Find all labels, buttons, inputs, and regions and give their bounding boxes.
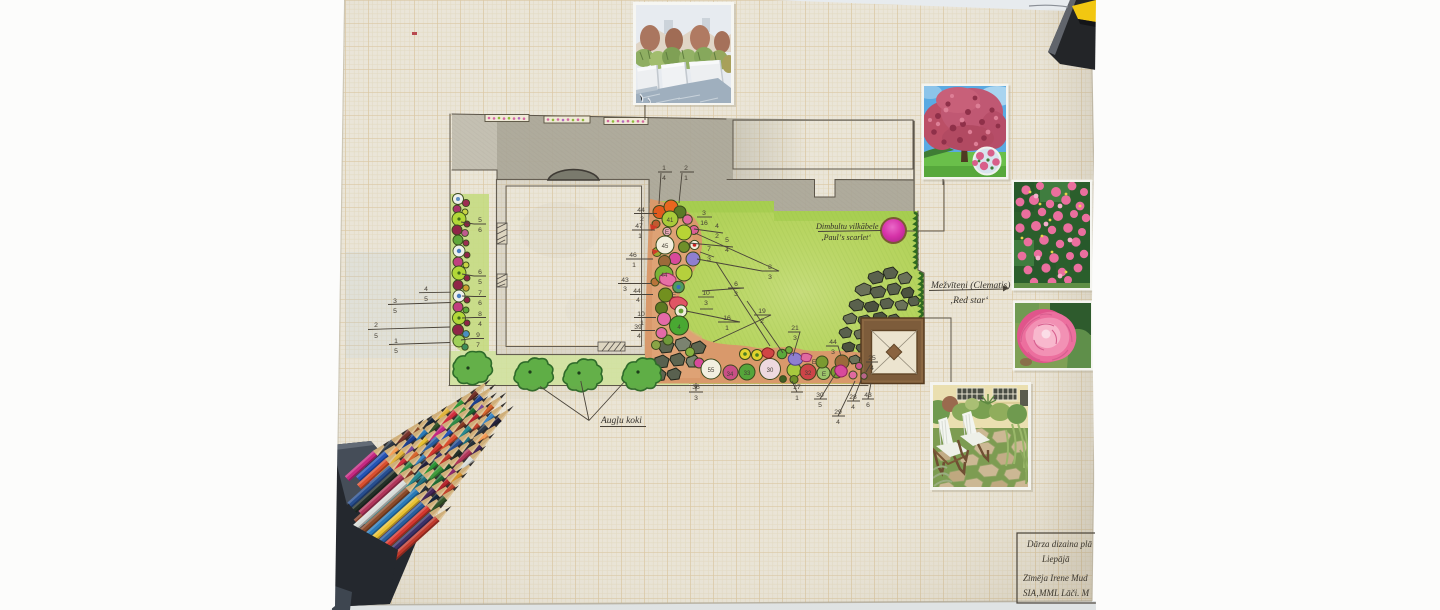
svg-text:5: 5	[374, 333, 378, 340]
svg-text:16: 16	[723, 315, 731, 322]
svg-text:3: 3	[768, 274, 772, 281]
svg-text:44: 44	[661, 273, 668, 279]
svg-text:3: 3	[831, 349, 835, 356]
svg-text:Liepājā: Liepājā	[1041, 554, 1070, 564]
svg-text:45: 45	[662, 244, 669, 250]
svg-text:21: 21	[791, 325, 799, 332]
svg-text:‚Red star‘: ‚Red star‘	[950, 296, 988, 306]
svg-text:5: 5	[424, 296, 428, 303]
svg-text:3: 3	[707, 256, 711, 263]
svg-text:E: E	[822, 371, 827, 378]
svg-text:29: 29	[834, 409, 842, 416]
svg-text:6: 6	[478, 269, 482, 276]
svg-text:E: E	[812, 359, 817, 366]
svg-text:‚Paulʼs scarlet‘: ‚Paulʼs scarlet‘	[821, 233, 871, 242]
svg-text:44: 44	[637, 207, 645, 214]
svg-text:3: 3	[393, 298, 397, 305]
svg-text:3: 3	[734, 291, 738, 298]
svg-text:E: E	[672, 292, 677, 299]
svg-text:9: 9	[476, 332, 480, 339]
svg-text:55: 55	[708, 368, 715, 374]
svg-text:4: 4	[637, 333, 641, 340]
svg-text:4: 4	[836, 419, 840, 426]
svg-text:7: 7	[707, 246, 711, 253]
svg-text:2: 2	[760, 318, 764, 325]
svg-text:10: 10	[702, 290, 710, 297]
svg-text:43: 43	[621, 277, 629, 284]
svg-text:3: 3	[704, 300, 708, 307]
svg-text:6: 6	[866, 402, 870, 409]
svg-text:34: 34	[727, 372, 734, 378]
svg-text:Mežvīteņi (Clematis): Mežvīteņi (Clematis)	[930, 280, 1010, 291]
svg-text:32: 32	[805, 371, 812, 377]
svg-text:6: 6	[478, 300, 482, 307]
svg-text:30: 30	[816, 392, 824, 399]
svg-text:3: 3	[702, 210, 706, 217]
svg-text:19: 19	[758, 308, 766, 315]
svg-text:1: 1	[795, 395, 799, 402]
svg-text:4: 4	[478, 321, 482, 328]
svg-text:6: 6	[478, 227, 482, 234]
svg-text:30: 30	[767, 368, 774, 374]
svg-text:46: 46	[629, 252, 637, 259]
svg-text:2: 2	[640, 216, 644, 223]
svg-text:25: 25	[868, 355, 876, 362]
svg-text:2: 2	[684, 165, 688, 172]
svg-text:1: 1	[638, 233, 642, 240]
svg-text:41: 41	[667, 218, 674, 224]
svg-text:28: 28	[849, 394, 857, 401]
svg-text:Dārza dizaina plā: Dārza dizaina plā	[1026, 539, 1093, 549]
svg-text:3: 3	[694, 395, 698, 402]
svg-text:5: 5	[725, 237, 729, 244]
svg-text:4: 4	[424, 286, 428, 293]
svg-text:1: 1	[394, 338, 398, 345]
svg-text:4: 4	[636, 297, 640, 304]
svg-text:3: 3	[793, 335, 797, 342]
svg-text:Zīmēja Irene Mud: Zīmēja Irene Mud	[1023, 573, 1088, 583]
svg-text:4: 4	[870, 365, 874, 372]
svg-text:7: 7	[476, 342, 480, 349]
svg-text:1: 1	[662, 165, 666, 172]
svg-text:Augļu koki: Augļu koki	[600, 416, 642, 426]
svg-text:8: 8	[478, 311, 482, 318]
svg-text:SIA‚MML Lāči. M: SIA‚MML Lāči. M	[1023, 588, 1090, 598]
svg-text:36: 36	[692, 384, 700, 391]
svg-text:4: 4	[662, 175, 666, 182]
svg-text:7: 7	[478, 290, 482, 297]
svg-text:1: 1	[632, 262, 636, 269]
svg-text:Dimbultu vilkābele: Dimbultu vilkābele	[815, 222, 879, 231]
svg-text:33: 33	[744, 371, 751, 377]
svg-text:5: 5	[818, 402, 822, 409]
svg-text:4: 4	[725, 247, 729, 254]
svg-text:3: 3	[623, 286, 627, 293]
svg-text:27: 27	[793, 384, 801, 391]
svg-text:4: 4	[715, 223, 719, 230]
svg-text:44: 44	[829, 339, 837, 346]
svg-text:E: E	[665, 229, 670, 236]
svg-text:44: 44	[633, 288, 641, 295]
svg-text:1: 1	[725, 325, 729, 332]
svg-text:43: 43	[864, 392, 872, 399]
svg-text:5: 5	[393, 308, 397, 315]
svg-text:8: 8	[768, 264, 772, 271]
svg-text:39: 39	[634, 324, 642, 331]
svg-text:2: 2	[715, 233, 719, 240]
svg-text:5: 5	[394, 348, 398, 355]
svg-text:1: 1	[684, 175, 688, 182]
svg-text:4: 4	[851, 404, 855, 411]
svg-text:5: 5	[478, 217, 482, 224]
svg-text:2: 2	[374, 322, 378, 329]
svg-text:47: 47	[635, 223, 643, 230]
svg-text:10: 10	[637, 311, 645, 318]
svg-text:6: 6	[734, 281, 738, 288]
svg-text:16: 16	[700, 220, 708, 227]
svg-text:5: 5	[478, 279, 482, 286]
